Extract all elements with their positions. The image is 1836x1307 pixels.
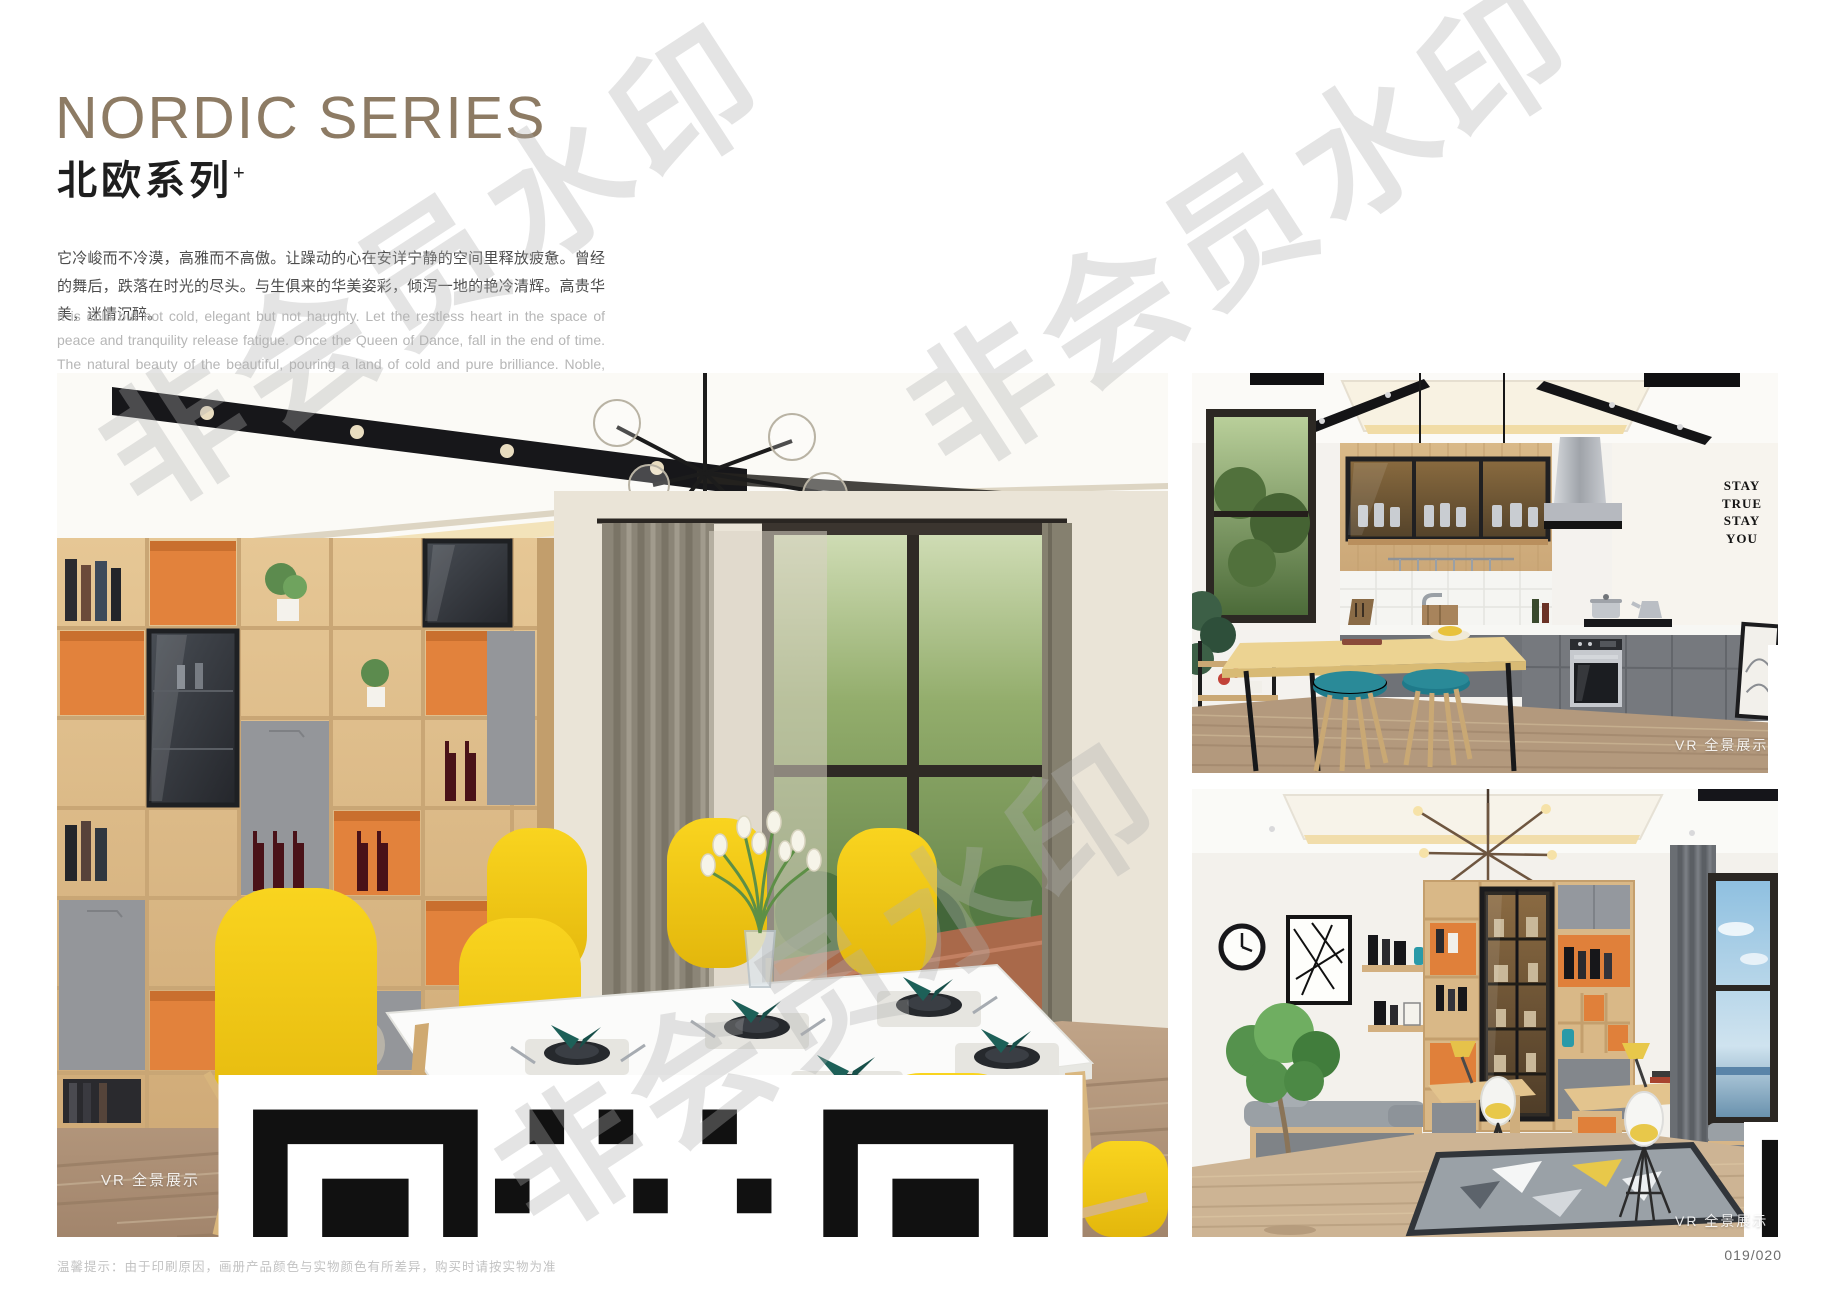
vr-panorama-label: VR 全景展示 bbox=[101, 1169, 200, 1190]
qr-code-vr-dining bbox=[95, 1075, 1168, 1237]
wall-art-line: TRUE bbox=[1716, 495, 1768, 513]
vr-panorama-label: VR 全景展示 bbox=[1675, 735, 1768, 755]
page-number: 019/020 bbox=[1690, 1247, 1782, 1263]
subtitle-text: 北欧系列 bbox=[57, 159, 233, 203]
photo-dining-room: VR 全景展示 bbox=[57, 373, 1168, 1237]
page-title: NORDIC SERIES bbox=[55, 84, 547, 152]
catalog-page: NORDIC SERIES 北欧系列+ 它冷峻而不冷漠，高雅而不高傲。让躁动的心… bbox=[0, 0, 1836, 1307]
subtitle-plus-mark: + bbox=[233, 163, 249, 185]
photo-study-room: VR 全景展示 bbox=[1192, 789, 1778, 1237]
photo-kitchen: STAY TRUE STAY YOU VR 全景展示 bbox=[1192, 373, 1778, 773]
wall-art-line: STAY bbox=[1716, 512, 1768, 530]
wall-art-stay-true: STAY TRUE STAY YOU bbox=[1716, 477, 1768, 547]
vr-panorama-label: VR 全景展示 bbox=[1675, 1211, 1768, 1231]
wall-art-line: STAY bbox=[1716, 477, 1768, 495]
wall-art-line: YOU bbox=[1716, 530, 1768, 548]
print-disclaimer-note: 温馨提示：由于印刷原因，画册产品颜色与实物颜色有所差异，购买时请按实物为准 bbox=[57, 1256, 557, 1275]
page-subtitle: 北欧系列+ bbox=[57, 148, 249, 206]
